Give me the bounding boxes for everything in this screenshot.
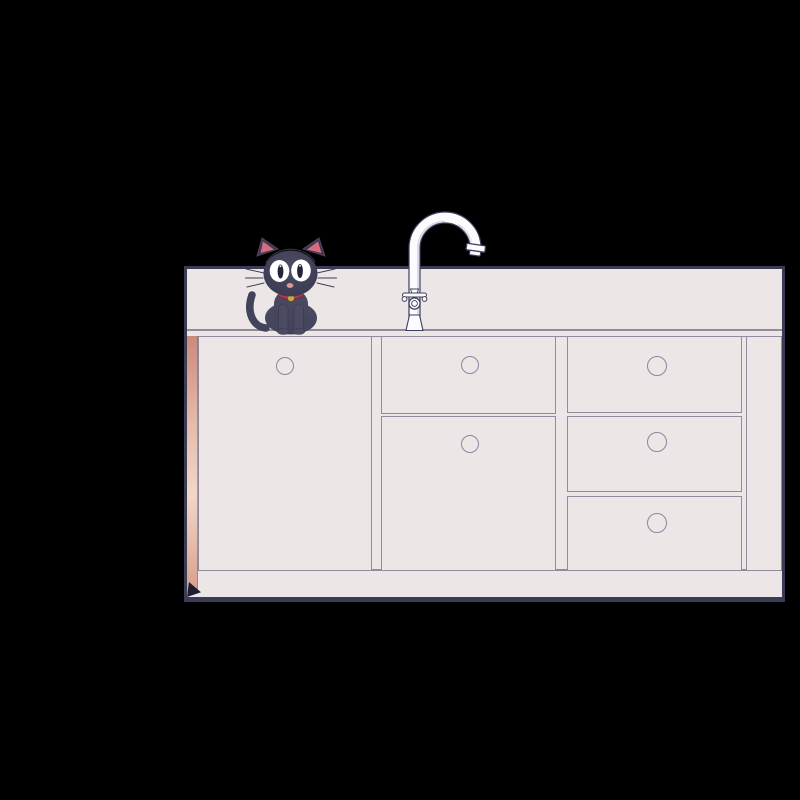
drawer-middle-bottom[interactable] [381, 416, 556, 571]
door-knob[interactable] [276, 357, 294, 375]
drawer-right-middle[interactable] [567, 416, 742, 492]
cat-tail [250, 295, 266, 328]
faucet-spout [415, 218, 476, 331]
faucet[interactable] [400, 203, 492, 333]
cat-nose [287, 283, 293, 288]
scene [0, 0, 800, 800]
drawer-knob[interactable] [461, 435, 479, 453]
drawer-knob[interactable] [647, 513, 667, 533]
black-cat[interactable] [245, 236, 337, 336]
drawer-knob[interactable] [647, 432, 667, 452]
drawer-middle-top[interactable] [381, 336, 556, 414]
drawer-knob[interactable] [461, 356, 479, 374]
cabinet-door[interactable] [198, 336, 372, 571]
faucet-aerator [465, 243, 485, 257]
cabinet-side-strip [187, 336, 198, 593]
drawer-right-bottom[interactable] [567, 496, 742, 571]
kick-plate [197, 571, 782, 597]
cabinet-filler-panel [746, 336, 782, 571]
faucet-handle[interactable] [402, 289, 427, 309]
faucet-base [406, 315, 423, 331]
drawer-right-top[interactable] [567, 336, 742, 413]
drawer-knob[interactable] [647, 356, 667, 376]
